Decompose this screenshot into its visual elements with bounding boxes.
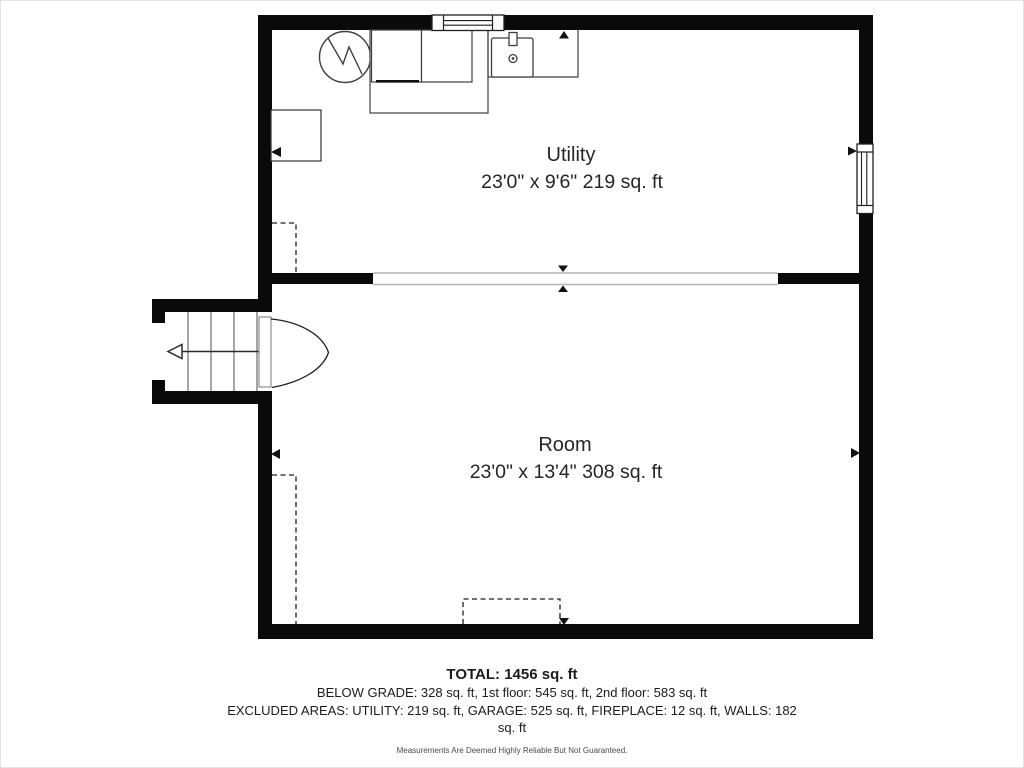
total-area-text: TOTAL: 1456 sq. ft	[192, 666, 832, 684]
utility-room-dimensions: 23'0" x 9'6" 219 sq. ft	[481, 171, 663, 194]
floor-areas-text: BELOW GRADE: 328 sq. ft, 1st floor: 545 …	[192, 684, 832, 702]
washer-icon	[372, 30, 422, 82]
floorplan-page: Utility 23'0" x 9'6" 219 sq. ft Room 23'…	[0, 0, 1024, 768]
window-icon-right	[857, 144, 873, 214]
window-icon-top	[432, 15, 504, 31]
excluded-areas-text: EXCLUDED AREAS: UTILITY: 219 sq. ft, GAR…	[227, 702, 797, 737]
utility-room-name: Utility	[547, 144, 596, 167]
sink-icon	[492, 33, 534, 78]
room-dimensions: 23'0" x 13'4" 308 sq. ft	[470, 461, 663, 484]
dryer-icon	[422, 30, 473, 82]
opening-arrow-marker	[558, 266, 568, 293]
water-heater-icon	[320, 32, 371, 83]
floorplan-drawing	[0, 0, 1024, 768]
disclaimer-text: Measurements Are Deemed Highly Reliable …	[192, 746, 832, 755]
washer-dryer-unit	[370, 30, 488, 113]
exterior-walls	[258, 15, 873, 639]
area-summary: TOTAL: 1456 sq. ft BELOW GRADE: 328 sq. …	[192, 666, 832, 755]
door-swing-icon	[259, 317, 329, 388]
stairs-direction-arrow	[168, 345, 268, 359]
wall-arrow-marker	[271, 31, 860, 625]
room-name: Room	[538, 434, 591, 457]
divider-wall	[258, 273, 873, 285]
